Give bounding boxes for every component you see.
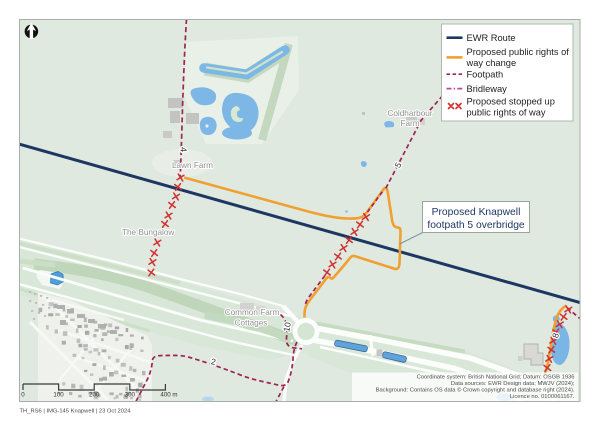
svg-text:200: 200 [89, 392, 100, 399]
svg-text:0: 0 [21, 392, 25, 399]
svg-text:100: 100 [53, 392, 64, 399]
svg-text:TH_RS6 | IMG-145 Knapwell | 23: TH_RS6 | IMG-145 Knapwell | 23 Oct 2024 [20, 408, 132, 414]
svg-text:Farm: Farm [400, 119, 419, 128]
svg-text:Proposed public rights of: Proposed public rights of [467, 47, 570, 57]
svg-text:300: 300 [125, 392, 136, 399]
svg-text:10: 10 [281, 321, 293, 332]
svg-text:4: 4 [178, 147, 188, 152]
svg-text:EWR Route: EWR Route [467, 33, 516, 43]
svg-text:Cottages: Cottages [235, 319, 268, 328]
svg-text:Data sources: EWR Design data;: Data sources: EWR Design data; MWJV (202… [451, 381, 575, 387]
svg-text:Common Farm: Common Farm [225, 308, 280, 317]
svg-text:footpath 5 overbridge: footpath 5 overbridge [427, 220, 525, 231]
svg-text:Coldharbour: Coldharbour [387, 109, 432, 118]
svg-text:The Bungalow: The Bungalow [122, 228, 174, 237]
svg-text:Proposed Knapwell: Proposed Knapwell [432, 207, 521, 218]
svg-text:Bridleway: Bridleway [467, 84, 508, 94]
svg-text:Background: Contains OS data ©: Background: Contains OS data © Crown cop… [376, 387, 575, 394]
svg-text:way change: way change [466, 58, 517, 68]
svg-text:Proposed stopped up: Proposed stopped up [467, 97, 555, 107]
svg-text:public rights of way: public rights of way [467, 108, 546, 118]
svg-text:Coordinate system: British Nat: Coordinate system: British National Grid… [417, 374, 575, 380]
svg-text:Licence no. 0100061167.: Licence no. 0100061167. [510, 394, 575, 400]
svg-text:Lawn Farm: Lawn Farm [172, 161, 213, 170]
svg-text:400 m: 400 m [160, 392, 177, 399]
svg-text:Footpath: Footpath [467, 70, 504, 80]
